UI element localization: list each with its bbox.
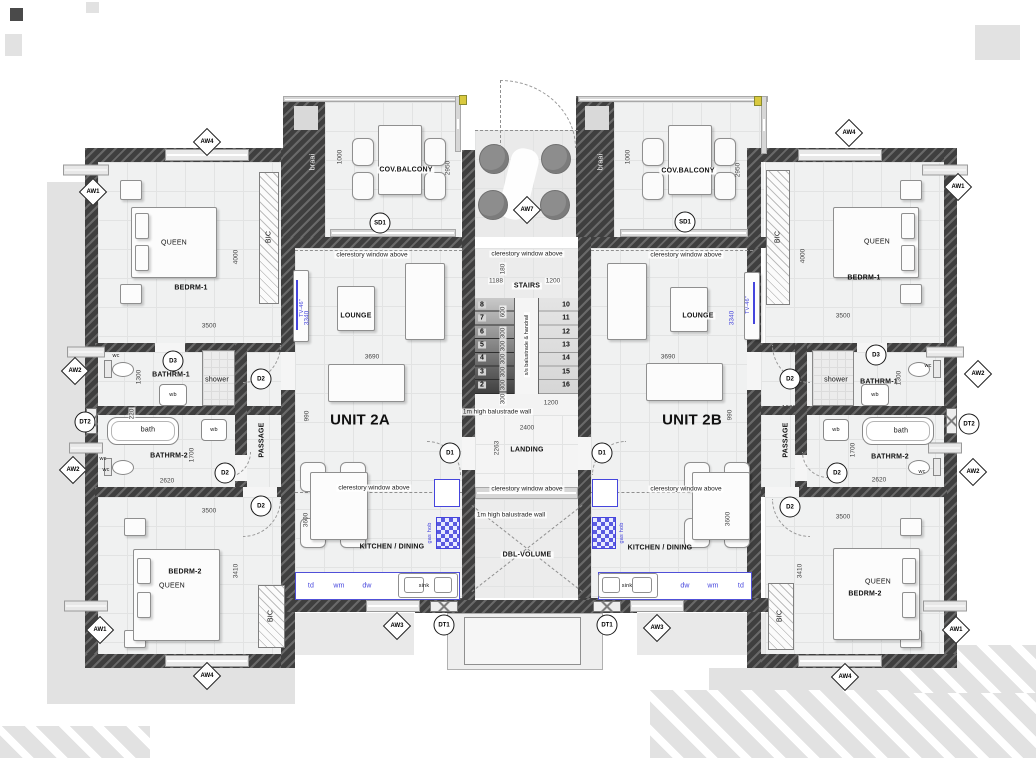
- fixture-label: shower: [205, 377, 229, 384]
- fixture-label: wb: [210, 427, 217, 433]
- pillow: [901, 245, 915, 271]
- marker-text: AW4: [192, 127, 222, 157]
- chair: [714, 138, 736, 166]
- tv-screen: [753, 282, 755, 324]
- dim-label: 3410: [233, 564, 240, 578]
- dim-label: 4000: [233, 250, 240, 264]
- coffee-table: [337, 286, 375, 331]
- fridge: [434, 479, 460, 507]
- dim-label: 2620: [872, 477, 886, 484]
- dim-label: 1200: [544, 400, 558, 407]
- marker-text: AW2: [963, 359, 993, 389]
- nightstand: [120, 180, 142, 200]
- chair: [424, 138, 446, 166]
- window-aw2: [928, 443, 962, 454]
- marker-text: AW4: [834, 118, 864, 148]
- balustrade-note: 1m high balustrade wall: [461, 409, 533, 416]
- bed-label: QUEEN: [865, 579, 891, 586]
- chair: [642, 138, 664, 166]
- bic-label: BIC: [266, 231, 273, 243]
- marker-aw1: AW1: [85, 615, 115, 645]
- door-opening: [747, 352, 761, 390]
- toilet: [933, 360, 941, 378]
- fixture-label: sink: [622, 583, 633, 589]
- unit-label: UNIT 2B: [662, 412, 722, 429]
- dim-label: 3500: [202, 508, 216, 515]
- toilet: [933, 458, 941, 476]
- bed-label: QUEEN: [161, 240, 187, 247]
- bed-label: QUEEN: [864, 239, 890, 246]
- dim-label: 1300: [896, 371, 903, 385]
- courtyard-circle: [479, 144, 509, 174]
- nightstand: [900, 180, 922, 200]
- dim-label: 2950: [445, 161, 452, 175]
- marker-d3: D3: [163, 351, 184, 372]
- stair-number: 14: [562, 355, 570, 362]
- appliance-label: gas hob: [427, 523, 433, 544]
- marker-d2: D2: [251, 496, 272, 517]
- fixture-label: wc: [924, 363, 931, 369]
- dim-label: 300: [500, 353, 507, 366]
- stair-flight-upper: [539, 298, 578, 394]
- fixture-label: bath: [141, 427, 155, 434]
- room-label: LOUNGE: [338, 313, 373, 320]
- sofa: [405, 263, 445, 340]
- clerestory-note: clerestory window above: [648, 252, 723, 259]
- room-label: STAIRS: [512, 283, 542, 290]
- room-label: BEDRM-1: [174, 285, 207, 292]
- marker-aw4: AW4: [834, 118, 864, 148]
- dim-label: 3690: [661, 354, 675, 361]
- fridge: [592, 479, 618, 507]
- marker-d2: D2: [215, 463, 236, 484]
- toilet: [104, 360, 112, 378]
- marker-text: AW7: [512, 195, 542, 225]
- shadow-blob: [10, 8, 23, 21]
- dim-label: 2263: [494, 441, 501, 455]
- gate-leaf-dash: [500, 80, 501, 148]
- gate-swing-arc: [500, 80, 576, 148]
- sink-basin: [434, 577, 452, 593]
- marker-text: AW2: [60, 356, 90, 386]
- window-aw1: [64, 601, 108, 612]
- sink-basin: [632, 577, 652, 593]
- appliance-label: dw: [680, 583, 689, 590]
- marker-dt2: DT2: [75, 412, 96, 433]
- window-aw3: [630, 600, 684, 612]
- marker-text: AW1: [941, 615, 971, 645]
- courtyard-circle: [540, 190, 570, 220]
- window-aw1: [63, 165, 109, 176]
- braai-label: braai: [310, 154, 317, 171]
- door-opening: [281, 352, 295, 390]
- nightstand: [124, 518, 146, 536]
- dim-label: 300: [500, 393, 507, 406]
- dim-label: 2400: [520, 425, 534, 432]
- dim-label: 1000: [782, 405, 796, 412]
- dim-label: 3410: [797, 564, 804, 578]
- marker-aw1: AW1: [943, 172, 973, 202]
- room-label: BATHRM-2: [871, 454, 909, 461]
- chair: [424, 172, 446, 200]
- room-label: BEDRM-2: [168, 569, 201, 576]
- balcony-glazing: [283, 96, 461, 102]
- marker-text: AW4: [830, 662, 860, 692]
- shadow-blob: [650, 690, 1036, 758]
- window-aw2: [926, 347, 964, 358]
- nightstand: [120, 284, 142, 304]
- wall: [578, 237, 770, 248]
- sofa: [328, 364, 405, 402]
- marker-text: AW3: [382, 611, 412, 641]
- dim-label: 1200: [545, 278, 561, 285]
- dim-label: 180: [500, 263, 507, 276]
- shadow-blob: [47, 668, 295, 704]
- window-aw4: [798, 149, 882, 161]
- marker-dt1: DT1: [434, 615, 455, 636]
- chair: [352, 172, 374, 200]
- marker-aw2: AW2: [958, 457, 988, 487]
- dim-label: 600: [500, 306, 507, 319]
- fixture-label: wb: [871, 392, 878, 398]
- fixture-label: wc: [102, 467, 109, 473]
- marker-aw4: AW4: [830, 662, 860, 692]
- chair: [714, 172, 736, 200]
- dining-table: [692, 472, 750, 540]
- door-dt2: [946, 408, 957, 434]
- appliance-label: td: [738, 583, 744, 590]
- stair-number: 15: [562, 369, 570, 376]
- marker-aw4: AW4: [192, 661, 222, 691]
- sink-basin: [602, 577, 620, 593]
- dim-label: 300: [500, 327, 507, 340]
- room-label: COV.BALCONY: [659, 168, 716, 175]
- door-dt1: [430, 601, 458, 612]
- marker-d2: D2: [251, 369, 272, 390]
- marker-dt1: DT1: [597, 615, 618, 636]
- dim-label: 990: [304, 411, 311, 422]
- shadow-blob: [5, 34, 22, 56]
- marker-d1: D1: [440, 443, 461, 464]
- handrail-note: s/s balustrade & handrail: [524, 313, 530, 378]
- room-label: KITCHEN / DINING: [628, 545, 693, 552]
- shadow-blob: [86, 2, 99, 13]
- dim-label: 1000: [625, 150, 632, 164]
- fixture-label: wb: [832, 427, 839, 433]
- clerestory-note: clerestory window above: [334, 252, 409, 259]
- pillow: [135, 213, 149, 239]
- marker-aw4: AW4: [192, 127, 222, 157]
- dim-label: 1000: [337, 150, 344, 164]
- stair-number: 7: [478, 315, 486, 322]
- wall: [462, 150, 475, 613]
- marker-sd1: SD1: [370, 213, 391, 234]
- marker-d1: D1: [592, 443, 613, 464]
- marker-sd1: SD1: [675, 212, 696, 233]
- stair-number: 3: [478, 369, 486, 376]
- dim-label: 1700: [189, 448, 196, 462]
- room-label: COV.BALCONY: [377, 167, 434, 174]
- fixture-label: wc: [918, 469, 925, 475]
- marker-aw2: AW2: [58, 455, 88, 485]
- fixture-label: wc: [99, 456, 106, 462]
- dim-label: 2950: [735, 163, 742, 177]
- dim-label: 3600: [303, 513, 310, 527]
- marker-text: AW2: [958, 457, 988, 487]
- marker-text: AW1: [85, 615, 115, 645]
- nightstand: [900, 284, 922, 304]
- tv-label: TV-46": [745, 296, 751, 314]
- courtyard-circle: [478, 190, 508, 220]
- balcony-table: [668, 125, 712, 195]
- fixture-label: wc: [112, 353, 119, 359]
- room-label: LANDING: [510, 447, 543, 454]
- door-opening: [462, 437, 475, 470]
- gas-hob: [592, 517, 616, 549]
- unit-label: UNIT 2A: [330, 412, 390, 429]
- clerestory-note: clerestory window above: [489, 486, 564, 493]
- wall: [281, 237, 474, 248]
- dim-label: 300: [500, 340, 507, 353]
- fixture-label: wb: [169, 392, 176, 398]
- clerestory-note: clerestory window above: [489, 251, 564, 258]
- marker-text: AW3: [642, 613, 672, 643]
- marker-text: AW1: [943, 172, 973, 202]
- marker-d2: D2: [827, 463, 848, 484]
- room-label: PASSAGE: [259, 422, 266, 457]
- dim-label: 3500: [202, 323, 216, 330]
- marker-text: AW1: [78, 177, 108, 207]
- appliance-label: wm: [707, 583, 718, 590]
- marker-d2: D2: [780, 497, 801, 518]
- window-aw1: [923, 601, 967, 612]
- fixture-label: sink: [419, 583, 430, 589]
- dim-label: 3340: [729, 311, 736, 325]
- braai-box: [585, 106, 609, 130]
- room-label: KITCHEN / DINING: [360, 544, 425, 551]
- fixture-label: bath: [894, 428, 908, 435]
- room-label: PASSAGE: [783, 422, 790, 457]
- appliance-label: td: [308, 583, 314, 590]
- marker-d2: D2: [780, 369, 801, 390]
- sofa: [607, 263, 647, 340]
- toilet: [112, 362, 134, 377]
- appliance-label: wm: [333, 583, 344, 590]
- marker-d3: D3: [866, 345, 887, 366]
- dim-label: 2620: [160, 478, 174, 485]
- stair-number: 11: [562, 315, 569, 322]
- room-label: BATHRM-1: [860, 379, 898, 386]
- tv-screen: [296, 280, 298, 330]
- dim-label: 3690: [365, 354, 379, 361]
- pillow: [135, 245, 149, 271]
- marker-dt2: DT2: [959, 414, 980, 435]
- appliance-label: dw: [362, 583, 371, 590]
- room-label: BATHRM-2: [150, 453, 188, 460]
- stair-number: 13: [562, 342, 570, 349]
- dim-label: 300: [500, 379, 507, 392]
- room-label: LOUNGE: [680, 313, 715, 320]
- fixture-label: shower: [824, 377, 848, 384]
- dim-label: 3500: [836, 514, 850, 521]
- stair-number: 5: [478, 342, 486, 349]
- room-label: BEDRM-1: [847, 275, 880, 282]
- dim-label: 300: [500, 366, 507, 379]
- marker-aw2: AW2: [963, 359, 993, 389]
- braai-label: braai: [598, 154, 605, 171]
- dim-label: 1000: [250, 406, 264, 413]
- nightstand: [900, 518, 922, 536]
- sliding-door: [330, 229, 456, 237]
- marker-aw1: AW1: [78, 177, 108, 207]
- coffee-table: [670, 287, 708, 332]
- stair-number: 4: [478, 355, 486, 362]
- dim-label: 220: [129, 408, 136, 421]
- dim-label: 990: [727, 410, 734, 421]
- bic-label: BIC: [777, 610, 784, 622]
- shadow-blob: [975, 25, 1020, 60]
- marker-aw7: AW7: [512, 195, 542, 225]
- gas-hob: [436, 517, 460, 549]
- window-aw2: [69, 443, 103, 454]
- bic-label: BIC: [775, 231, 782, 243]
- pillow: [137, 558, 151, 584]
- marker-text: AW4: [192, 661, 222, 691]
- appliance-label: gas hob: [619, 523, 625, 544]
- door-opening: [765, 487, 799, 497]
- dim-label: 3340: [304, 311, 311, 325]
- dim-label: 1700: [850, 443, 857, 457]
- balustrade-note: 1m high balustrade wall: [475, 512, 547, 519]
- bed-label: QUEEN: [159, 583, 185, 590]
- marker-aw2: AW2: [60, 356, 90, 386]
- dim-label: 4000: [800, 249, 807, 263]
- dim-label: 3500: [836, 313, 850, 320]
- pillow: [902, 592, 916, 618]
- room-label: BEDRM-2: [848, 591, 881, 598]
- door-dt1: [593, 601, 621, 612]
- marker-aw1: AW1: [941, 615, 971, 645]
- stair-number: 12: [562, 329, 570, 336]
- toilet: [112, 460, 134, 475]
- pillow: [902, 558, 916, 584]
- pillow: [901, 213, 915, 239]
- chair: [642, 172, 664, 200]
- dim-label: 3600: [725, 512, 732, 526]
- room-label: BATHRM-1: [152, 372, 190, 379]
- stair-number: 16: [562, 382, 570, 389]
- stair-number: 6: [478, 329, 486, 336]
- chair: [352, 138, 374, 166]
- downpipe-marker: [754, 96, 762, 106]
- room-label: DBL-VOLUME: [501, 552, 554, 559]
- entry-step: [464, 617, 581, 665]
- shadow-blob: [0, 726, 150, 758]
- stair-number: 10: [562, 302, 570, 309]
- downpipe-marker: [459, 95, 467, 105]
- balcony-table: [378, 125, 422, 195]
- stair-number: 8: [478, 302, 486, 309]
- door-opening: [578, 437, 591, 470]
- balcony-glazing: [578, 96, 768, 102]
- dining-table: [310, 472, 368, 540]
- courtyard-circle: [541, 144, 571, 174]
- floor-plan: s/s balustrade & handrail 8 7 6 5 4 3 2 …: [0, 0, 1036, 758]
- bic-label: BIC: [268, 610, 275, 622]
- dim-label: 1188: [488, 278, 504, 285]
- dim-label: 1300: [136, 370, 143, 384]
- marker-aw3: AW3: [382, 611, 412, 641]
- clerestory-note: clerestory window above: [648, 486, 723, 493]
- pillow: [137, 592, 151, 618]
- marker-aw3: AW3: [642, 613, 672, 643]
- sofa: [646, 363, 723, 401]
- braai-box: [294, 106, 318, 130]
- marker-text: AW2: [58, 455, 88, 485]
- clerestory-note: clerestory window above: [336, 485, 411, 492]
- stair-number: 2: [478, 382, 486, 389]
